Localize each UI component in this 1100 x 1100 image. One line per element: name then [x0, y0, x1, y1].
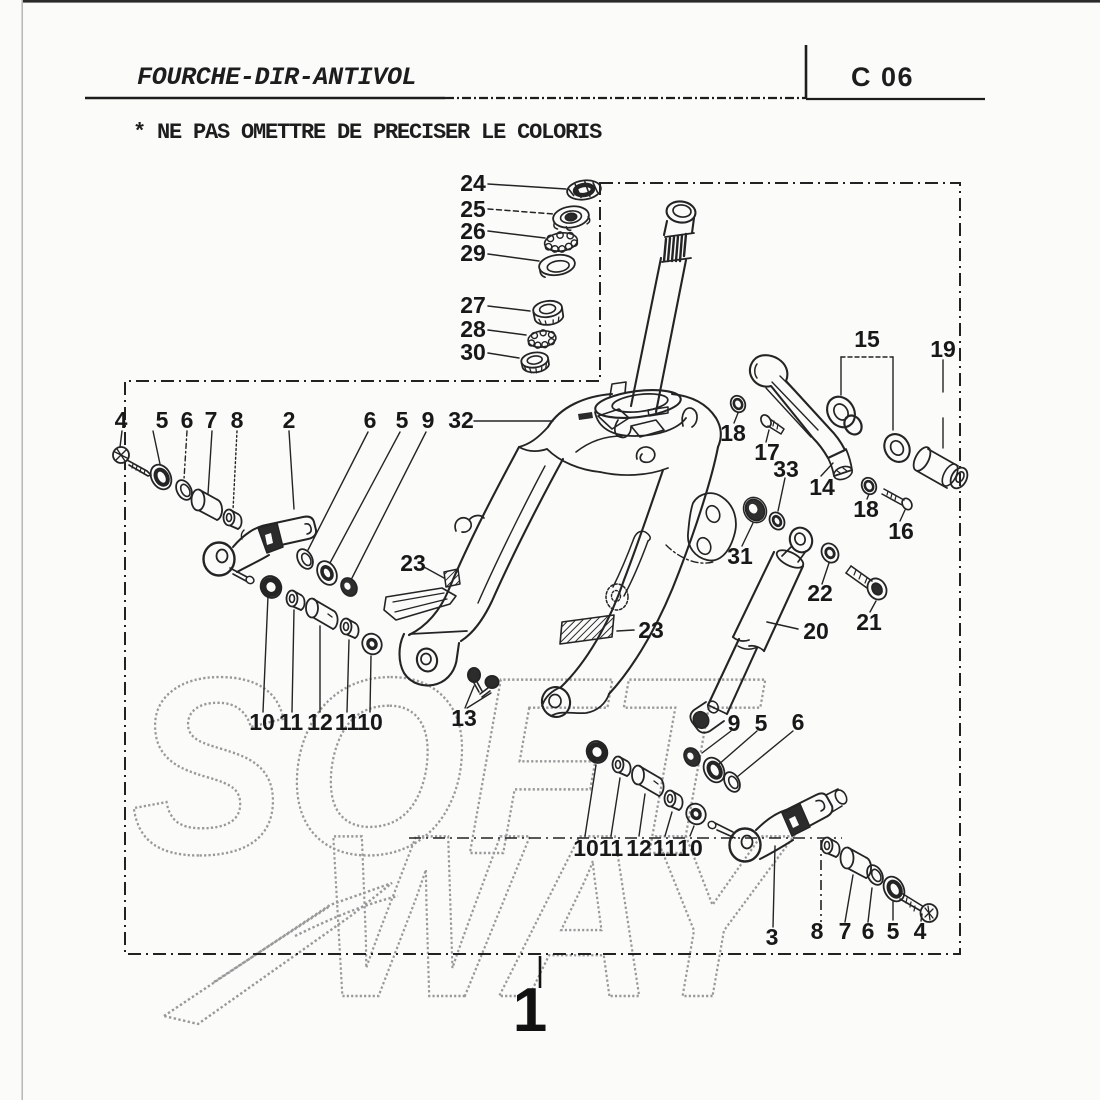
svg-text:* NE PAS OMETTRE DE PRECISER L: * NE PAS OMETTRE DE PRECISER LE COLORIS — [133, 120, 602, 145]
svg-text:5: 5 — [755, 710, 768, 736]
svg-text:6: 6 — [862, 918, 875, 944]
svg-text:11: 11 — [279, 709, 304, 735]
svg-text:1: 1 — [513, 976, 547, 1045]
svg-text:33: 33 — [773, 456, 799, 482]
svg-text:8: 8 — [811, 918, 824, 944]
svg-text:16: 16 — [888, 518, 914, 544]
svg-text:18: 18 — [720, 420, 746, 446]
svg-text:23: 23 — [638, 617, 664, 643]
svg-text:32: 32 — [448, 407, 474, 433]
svg-text:8: 8 — [231, 407, 244, 433]
svg-text:21: 21 — [856, 609, 882, 635]
svg-text:10: 10 — [249, 709, 275, 735]
svg-text:14: 14 — [809, 474, 835, 500]
svg-text:3: 3 — [766, 924, 779, 950]
svg-text:5: 5 — [156, 407, 169, 433]
svg-text:20: 20 — [803, 618, 829, 644]
svg-text:4: 4 — [914, 918, 927, 944]
svg-text:24: 24 — [460, 170, 486, 196]
svg-text:5: 5 — [396, 407, 409, 433]
svg-text:10: 10 — [573, 835, 599, 861]
svg-text:10: 10 — [357, 709, 383, 735]
svg-text:9: 9 — [422, 407, 435, 433]
svg-text:4: 4 — [115, 407, 128, 433]
svg-text:22: 22 — [807, 580, 833, 606]
svg-text:19: 19 — [930, 336, 956, 362]
svg-text:WAY: WAY — [318, 787, 794, 1046]
svg-text:11: 11 — [599, 835, 624, 861]
svg-text:6: 6 — [792, 709, 805, 735]
svg-text:C 06: C 06 — [851, 62, 914, 92]
svg-text:2: 2 — [283, 407, 296, 433]
svg-text:13: 13 — [451, 705, 477, 731]
svg-text:6: 6 — [364, 407, 377, 433]
svg-text:12: 12 — [626, 835, 652, 861]
svg-text:11: 11 — [653, 835, 678, 861]
svg-text:18: 18 — [853, 496, 879, 522]
svg-text:11: 11 — [335, 709, 360, 735]
svg-text:30: 30 — [460, 339, 486, 365]
svg-text:7: 7 — [839, 918, 852, 944]
svg-text:9: 9 — [728, 710, 741, 736]
svg-text:12: 12 — [307, 709, 333, 735]
svg-text:6: 6 — [181, 407, 194, 433]
svg-text:29: 29 — [460, 240, 486, 266]
svg-text:23: 23 — [400, 550, 426, 576]
svg-text:15: 15 — [854, 326, 880, 352]
svg-text:31: 31 — [727, 543, 753, 569]
svg-text:FOURCHE-DIR-ANTIVOL: FOURCHE-DIR-ANTIVOL — [137, 63, 416, 92]
svg-text:5: 5 — [887, 918, 900, 944]
svg-text:10: 10 — [677, 835, 703, 861]
svg-text:7: 7 — [205, 407, 218, 433]
svg-text:27: 27 — [460, 292, 486, 318]
